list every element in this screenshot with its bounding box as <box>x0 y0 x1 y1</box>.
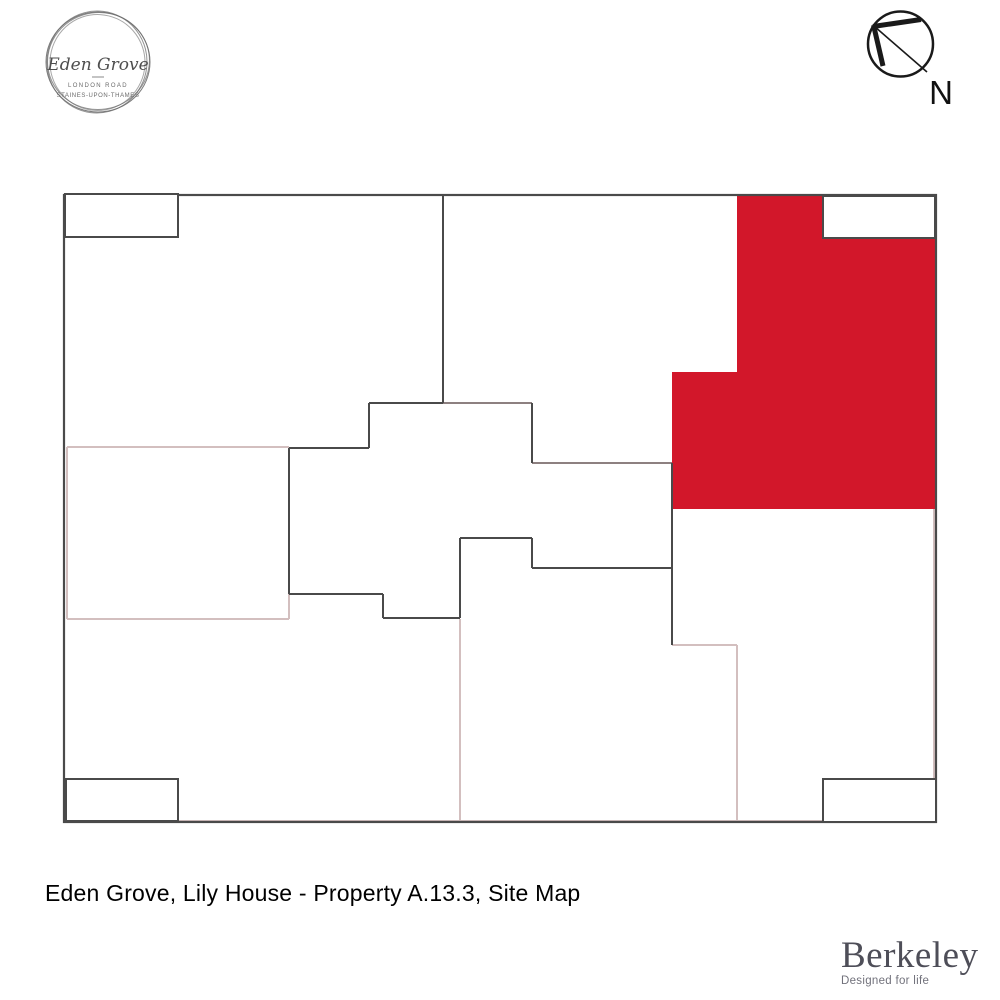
page: Eden Grove LONDON ROAD STAINES-UPON-THAM… <box>0 0 1000 1000</box>
corner-building <box>65 194 178 237</box>
berkeley-tagline: Designed for life <box>841 975 991 987</box>
berkeley-name: Berkeley <box>841 936 991 976</box>
corner-building <box>823 196 935 238</box>
berkeley-logo: Berkeley Designed for life <box>841 936 991 987</box>
map-caption: Eden Grove, Lily House - Property A.13.3… <box>45 879 580 907</box>
corner-building <box>823 779 936 822</box>
highlighted-building <box>672 196 935 509</box>
site-map <box>0 0 1000 1000</box>
corner-building <box>66 779 178 821</box>
